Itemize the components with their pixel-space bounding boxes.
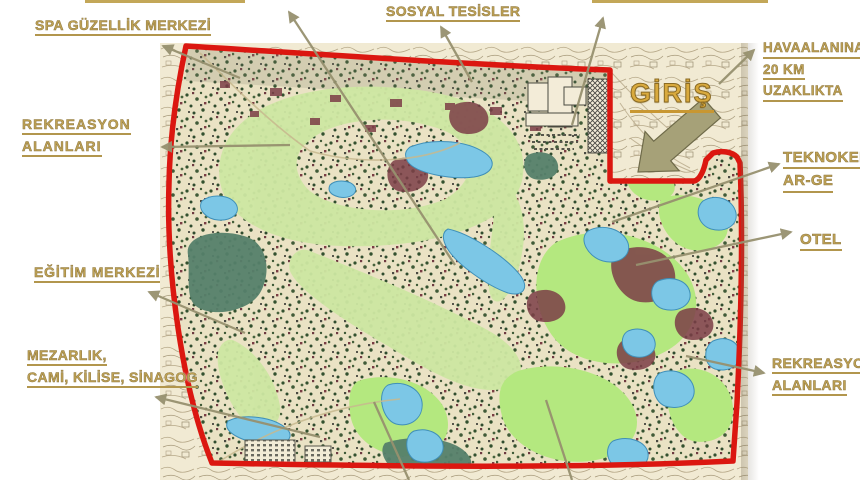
label-sosyal-tesisler: SOSYAL TESİSLER: [386, 3, 520, 22]
label-teknokent-arge: TEKNOKENT AR-GE: [783, 149, 860, 196]
label-havaalanina-20km: HAVAALANINA 20 KM UZAKLIKTA: [763, 40, 860, 105]
slide: SPA GÜZELLİK MERKEZİ SOSYAL TESİSLER HAV…: [0, 0, 860, 480]
label-spa-guzellik-merkezi: SPA GÜZELLİK MERKEZİ: [35, 17, 211, 36]
cut-off-label-underline-right: [592, 0, 768, 3]
map-page-edge-shadow: [741, 43, 765, 480]
label-rekreasyon-alanlari-left: REKREASYON ALANLARI: [22, 116, 131, 160]
label-rekreasyon-alanlari-right: REKREASYON ALANLARI: [772, 355, 860, 399]
grid-building-block: [305, 446, 331, 462]
label-mezarlik-cami-kilise-sinagog: MEZARLIK, CAMİ, KİLİSE, SİNAGOG: [27, 347, 198, 391]
social-facilities-buildings: [526, 77, 610, 153]
label-otel: OTEL: [800, 231, 842, 251]
label-giris: GİRİŞ: [630, 78, 714, 113]
cut-off-label-underline-left: [85, 0, 245, 3]
label-egitim-merkezi: EĞİTİM MERKEZİ: [34, 264, 160, 283]
